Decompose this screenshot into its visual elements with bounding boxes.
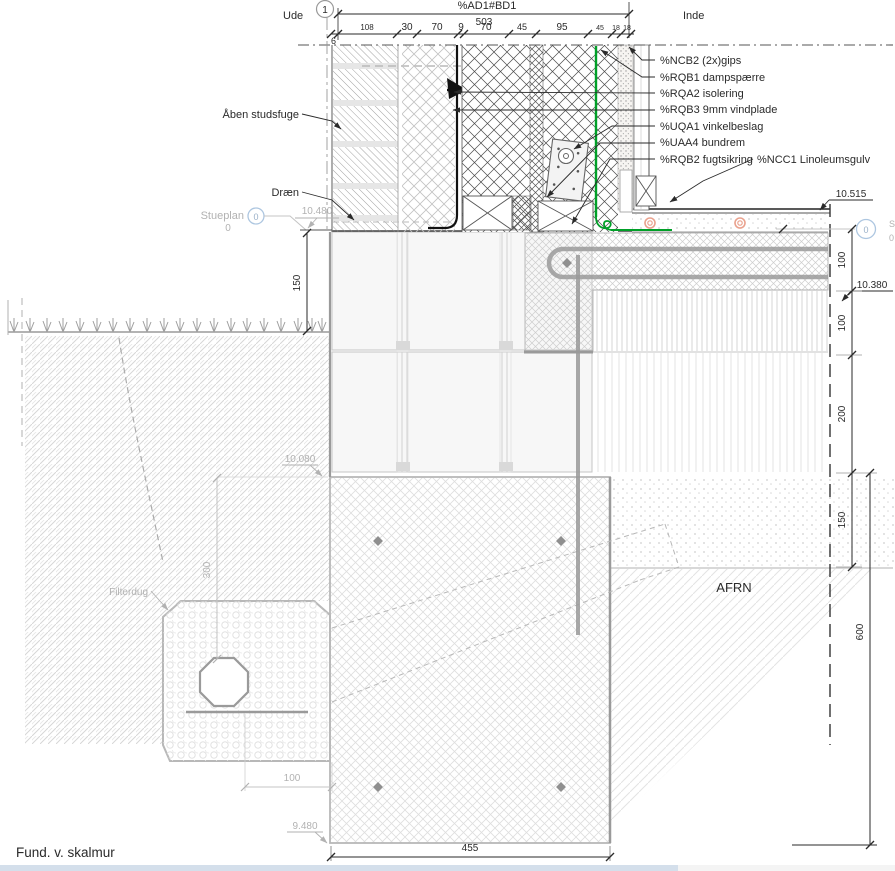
wall-assembly xyxy=(332,45,672,232)
dim-45: 45 xyxy=(517,22,527,32)
cad-detail-drawing-view: %AD1#BD1 503 6 108 30 70 9 70 45 95 45 1… xyxy=(0,0,895,871)
bottom-dimension: 455 xyxy=(327,843,614,861)
wall-type-label: %AD1#BD1 xyxy=(458,0,517,12)
dim-9: 9 xyxy=(458,22,464,33)
dim-30: 30 xyxy=(401,22,413,33)
dim-108: 108 xyxy=(360,23,374,32)
stueplan-right-partial-0: 0 xyxy=(889,233,894,243)
level-9480: 9.480 xyxy=(292,821,317,832)
capillary-layer xyxy=(593,291,828,351)
dim-6: 6 xyxy=(331,36,336,46)
drain-pipe xyxy=(200,658,248,706)
dim-70b: 70 xyxy=(480,22,492,33)
grid-bubble-1-label: 1 xyxy=(322,5,328,16)
drawing-title: Fund. v. skalmur xyxy=(16,845,115,860)
dim-18b: 18 xyxy=(623,25,631,32)
dim-right-100a: 100 xyxy=(837,251,848,268)
dim-terrain-150: 150 xyxy=(292,274,303,291)
dim-right-100b: 100 xyxy=(837,314,848,331)
scrollbar-thumb[interactable] xyxy=(0,865,678,871)
level-10380: 10.380 xyxy=(857,280,888,291)
stueplan-bubble-right-value: 0 xyxy=(863,225,868,235)
stueplan-label: Stueplan xyxy=(201,210,244,222)
dim-fund-300: 300 xyxy=(202,561,213,578)
afrn-layer xyxy=(610,569,876,828)
sill-block xyxy=(636,176,656,206)
callout-vindplade: %RQB3 9mm vindplade xyxy=(660,104,777,116)
callout-draen: Dræn xyxy=(271,187,299,199)
horizontal-scrollbar[interactable] xyxy=(0,865,895,871)
callout-bundrem: %UAA4 bundrem xyxy=(660,137,745,149)
top-dimensions: %AD1#BD1 503 6 108 30 70 9 70 45 95 45 1… xyxy=(327,0,635,46)
afrn-label: AFRN xyxy=(716,580,751,595)
stueplan-bubble-value: 0 xyxy=(253,212,258,222)
dim-fund-width-455: 455 xyxy=(462,843,479,854)
callout-gips: %NCB2 (2x)gips xyxy=(660,55,742,67)
dim-70: 70 xyxy=(431,22,443,33)
dim-drain-100: 100 xyxy=(284,773,301,784)
dim-95: 95 xyxy=(556,22,568,33)
dim-45b: 45 xyxy=(596,25,604,32)
dim-right-200: 200 xyxy=(837,405,848,422)
edge-insulation-strip xyxy=(620,170,632,212)
callout-vinkelbeslag: %UQA1 vinkelbeslag xyxy=(660,121,763,133)
callout-dampspaerre: %RQB1 dampspærre xyxy=(660,72,765,84)
dim-right-150: 150 xyxy=(837,511,848,528)
terrain-left xyxy=(8,298,330,761)
dim-18a: 18 xyxy=(612,25,620,32)
bottom-rails xyxy=(463,196,593,231)
callout-filterdug: Filterdug xyxy=(109,587,148,598)
level-10515: 10.515 xyxy=(836,189,867,200)
inde-label: Inde xyxy=(683,10,704,22)
stueplan-right-partial-s: S xyxy=(889,219,895,229)
callout-aaben-studsfuge: Åben studsfuge xyxy=(223,108,299,121)
stueplan-value: 0 xyxy=(225,223,231,234)
drain-gravel-pocket xyxy=(163,601,330,761)
callout-fugtsikring: %RQB2 fugtsikring xyxy=(660,154,753,166)
level-10080: 10.080 xyxy=(285,454,316,465)
level-10480: 10.480 xyxy=(302,206,333,217)
sub-base-layer xyxy=(593,353,828,472)
callout-isolering: %RQA2 isolering xyxy=(660,88,744,100)
ude-label: Ude xyxy=(283,10,303,22)
foundation-detail-drawing: %AD1#BD1 503 6 108 30 70 9 70 45 95 45 1… xyxy=(0,0,895,871)
dim-right-600: 600 xyxy=(855,623,866,640)
callout-linoleumsgulv: %NCC1 Linoleumsgulv xyxy=(757,154,871,166)
grass-tufts xyxy=(10,318,326,332)
brick-veneer xyxy=(332,45,398,232)
cavity-insulation xyxy=(402,45,455,232)
